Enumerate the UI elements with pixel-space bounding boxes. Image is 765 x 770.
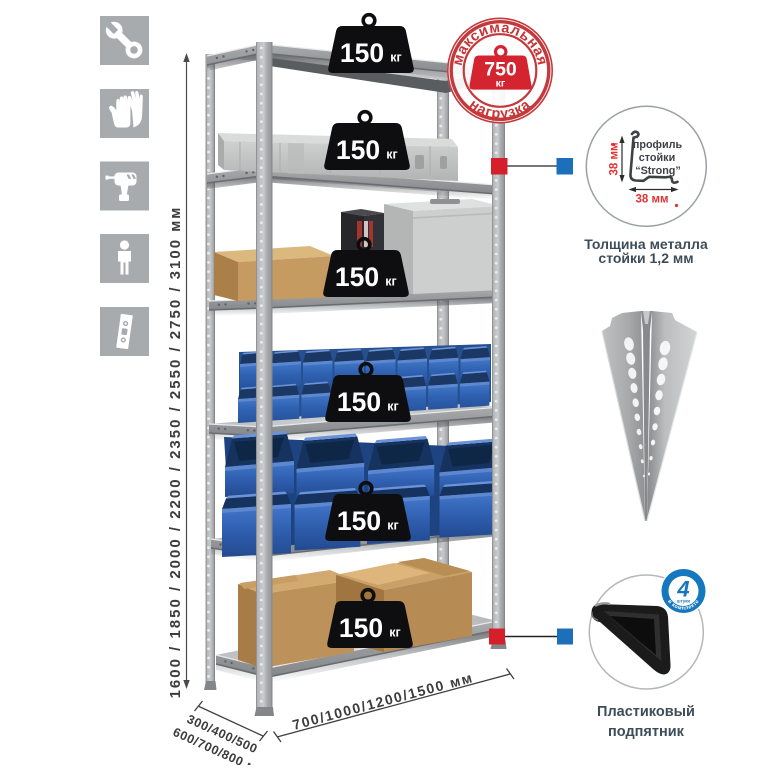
svg-text:кг: кг (496, 78, 506, 90)
svg-text:38 мм: 38 мм (609, 142, 621, 175)
svg-text:подпятник: подпятник (608, 724, 685, 740)
svg-text:1600 / 1850 / 2000 / 2200 / 23: 1600 / 1850 / 2000 / 2200 / 2350 / 2550 … (167, 206, 184, 699)
svg-text:38 мм: 38 мм (635, 194, 668, 206)
svg-text:Пластиковый: Пластиковый (597, 704, 695, 720)
svg-text:стойки: стойки (639, 152, 675, 164)
svg-text:“Strong”: “Strong” (635, 165, 681, 177)
svg-text:стойки 1,2 мм: стойки 1,2 мм (598, 250, 693, 266)
svg-text:профиль: профиль (633, 139, 683, 151)
svg-text:штуки: штуки (677, 599, 691, 604)
svg-text:700/1000/1200/1500 мм: 700/1000/1200/1500 мм (291, 669, 475, 733)
